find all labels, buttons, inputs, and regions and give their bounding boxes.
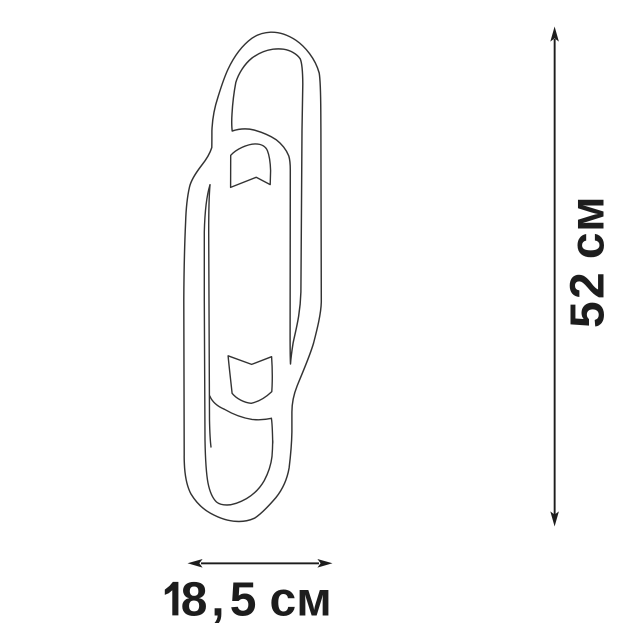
svg-text:52 см: 52 см [561,196,614,328]
svg-text:8,5 см: 8,5 см [181,573,332,626]
